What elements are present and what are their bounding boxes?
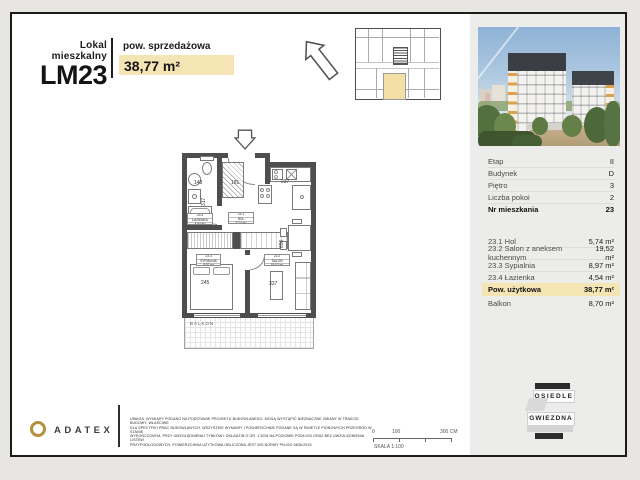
details-label: Piętro: [488, 181, 508, 190]
balcony-plan-label: BALKON: [190, 321, 214, 326]
sink-bowl: [274, 170, 278, 174]
dim-317: 317: [201, 198, 207, 206]
details-value: 2: [610, 193, 614, 202]
details-label: Nr mieszkania: [488, 205, 538, 214]
dim-237: 237: [281, 179, 289, 185]
room-value: 8,97 m²: [589, 261, 614, 270]
floorplan-sheet-screen: Lokal mieszkalny LM23 pow. sprzedażowa 3…: [0, 0, 640, 480]
sale-area-value: 38,77 m²: [124, 58, 180, 74]
room-row-lazienka: 23.4 Łazienka4,54 m²: [488, 271, 614, 283]
photo-tree: [532, 117, 548, 135]
key-plan-stairwell: [393, 47, 408, 65]
total-area-row: Pow. użytkowa38,77 m²: [482, 283, 620, 296]
scale-tick: [399, 438, 400, 442]
scale-tick: [451, 438, 452, 442]
wall: [182, 225, 222, 230]
island-sink-dot: [300, 195, 304, 199]
balcony-value: 8,70 m²: [589, 299, 614, 308]
pillow: [213, 267, 230, 275]
key-plan: [355, 28, 441, 100]
details-label: Etap: [488, 157, 503, 166]
tag-area: 8,97 m²: [197, 263, 220, 266]
balcony: BALKON: [184, 318, 314, 349]
scale-caption: SKALA 1:100: [374, 444, 404, 450]
building-photo: [478, 27, 620, 146]
scale-tick-label-0: 0: [372, 429, 375, 435]
details-value: 23: [606, 205, 614, 214]
bedroom-wardrobe: [187, 232, 233, 249]
key-plan-highlighted-unit: [383, 73, 406, 100]
details-row-nr: Nr mieszkania23: [488, 203, 614, 215]
dim-650: 650: [279, 240, 285, 248]
scale-line: [373, 438, 451, 439]
estate-logo: OSIEDLE GWIEZDNA: [525, 383, 575, 443]
key-plan-line: [376, 68, 377, 98]
estate-logo-word-bottom: GWIEZDNA: [527, 412, 575, 426]
details-value: D: [609, 169, 614, 178]
balcony-row: Balkon8,70 m²: [488, 297, 614, 309]
estate-logo-bar: [535, 383, 570, 389]
total-value: 38,77 m²: [584, 285, 614, 294]
estate-logo-shape: [525, 398, 548, 411]
tag-area: 4,54 m²: [188, 222, 212, 225]
burner: [260, 188, 264, 192]
chair: [280, 228, 287, 237]
key-plan-line: [356, 68, 439, 69]
footer-divider: [118, 405, 120, 447]
unit-type-label: Lokal mieszkalny: [22, 40, 107, 62]
header-divider: [111, 38, 113, 78]
key-plan-line: [410, 29, 411, 62]
wall: [311, 162, 316, 318]
sheet: Lokal mieszkalny LM23 pow. sprzedażowa 3…: [10, 12, 627, 457]
chair: [292, 219, 302, 224]
unit-header: Lokal mieszkalny LM23: [22, 40, 107, 88]
sink-bowl: [274, 175, 278, 179]
details-value: 3: [610, 181, 614, 190]
room-tag-salon: 23.2 SALON 19,52 m²: [264, 254, 290, 266]
tag-area: 5,74 m²: [229, 221, 253, 224]
dim-245: 245: [201, 280, 209, 286]
dim-181: 181: [231, 180, 239, 186]
dining-table: [288, 225, 311, 251]
photo-tree: [562, 115, 582, 137]
key-plan-line: [408, 68, 409, 98]
room-label: 23.4 Łazienka: [488, 273, 535, 282]
toilet: [202, 162, 212, 175]
key-plan-line: [424, 29, 425, 62]
scale-tick: [425, 438, 426, 442]
photo-building-roof: [572, 71, 614, 85]
burner: [266, 194, 270, 198]
room-tag-sypialnia: 23.3 SYPIALNIA 8,97 m²: [196, 254, 221, 266]
toilet-tank: [200, 156, 214, 161]
wall: [245, 270, 250, 313]
sofa: [295, 262, 311, 310]
details-label: Budynek: [488, 169, 517, 178]
chair: [292, 252, 302, 257]
north-arrow-icon: [295, 32, 345, 85]
estate-logo-bar: [527, 425, 573, 432]
scale-bar: 0 100 300 CM SKALA 1:100: [372, 429, 472, 453]
dim-148: 148: [194, 180, 202, 186]
key-plan-line: [368, 29, 369, 62]
room-tag-hol: 23.1 HOL 5,74 m²: [228, 212, 254, 224]
details-value: II: [610, 157, 614, 166]
photo-building-roof: [508, 53, 566, 71]
entrance-arrow-icon: [234, 128, 256, 150]
room-tag-lazienka: 23.4 ŁAZIENKA 4,54 m²: [187, 213, 213, 225]
adatex-brand-name: ADATEX: [54, 425, 113, 436]
photo-tree: [604, 101, 620, 146]
scale-tick: [373, 438, 374, 442]
floor-plan: BALKON 148 317 181 237 650 245 337 23.4 …: [150, 128, 352, 370]
scale-tick-label-300: 300 CM: [440, 429, 458, 435]
key-plan-line: [382, 29, 383, 62]
washing-machine-dot: [192, 194, 197, 199]
photo-bushes: [512, 135, 542, 146]
unit-code: LM23: [22, 62, 107, 88]
tag-area: 19,52 m²: [265, 263, 289, 266]
wall: [233, 232, 240, 249]
pillow: [193, 267, 210, 275]
estate-logo-bar: [535, 433, 563, 439]
disclaimer-text: UWAGA: WYMIARY PODANO NA PODSTAWIE PROJE…: [130, 417, 372, 447]
bedroom-door-arc: [250, 255, 265, 270]
sale-area-label: pow. sprzedażowa: [123, 41, 210, 52]
burner: [260, 194, 264, 198]
sale-area-highlight: 38,77 m²: [119, 55, 234, 75]
details-label: Liczba pokoi: [488, 193, 530, 202]
room-label: 23.3 Sypialnia: [488, 261, 535, 270]
burner: [266, 188, 270, 192]
scale-tick-label-100: 100: [392, 429, 400, 435]
room-value: 4,54 m²: [589, 273, 614, 282]
balcony-label: Balkon: [488, 299, 511, 308]
total-label: Pow. użytkowa: [488, 285, 541, 294]
key-plan-line: [424, 68, 425, 98]
dim-337: 337: [269, 281, 277, 287]
adatex-logo-icon: [30, 421, 46, 437]
